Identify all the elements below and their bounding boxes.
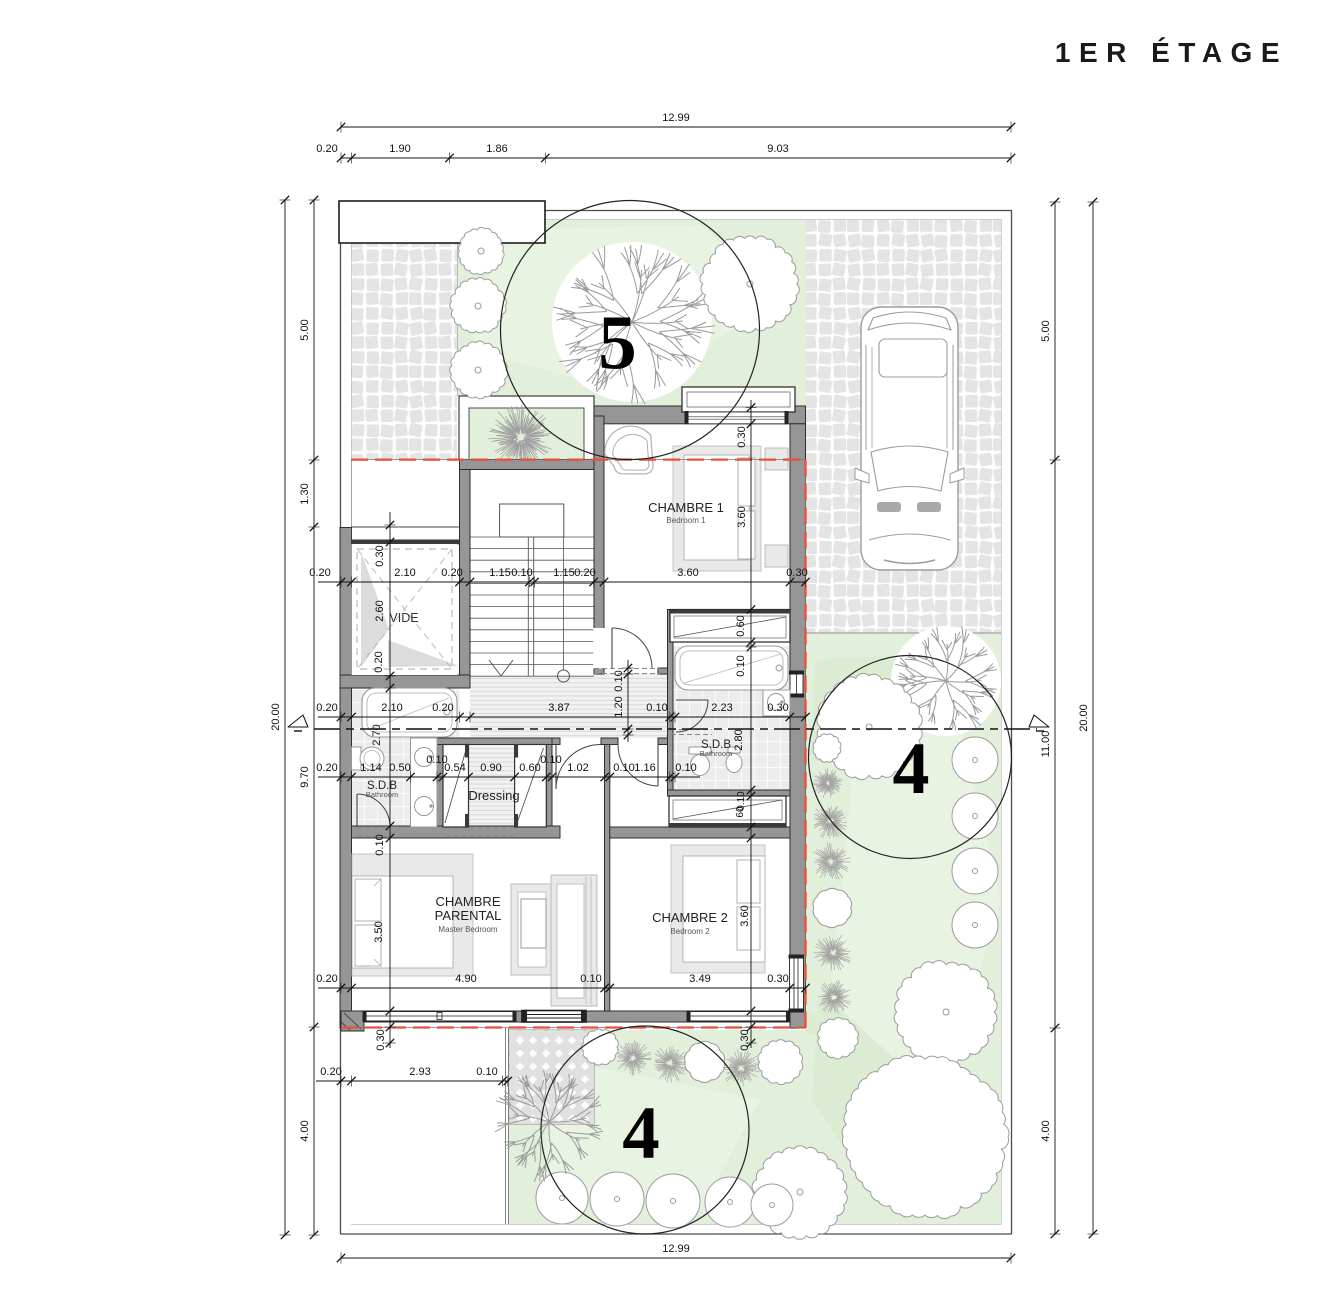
svg-text:0.10: 0.10 — [675, 762, 696, 774]
svg-text:0.20: 0.20 — [316, 762, 337, 774]
svg-text:3.50: 3.50 — [373, 921, 385, 942]
svg-text:1.15: 1.15 — [489, 567, 510, 579]
svg-text:20.00: 20.00 — [1078, 704, 1090, 732]
svg-text:0.20: 0.20 — [316, 973, 337, 985]
svg-text:0.30: 0.30 — [374, 545, 386, 566]
svg-text:2.10: 2.10 — [394, 567, 415, 579]
svg-text:3.60: 3.60 — [736, 506, 748, 527]
svg-text:CHAMBRE 1: CHAMBRE 1 — [648, 500, 724, 515]
svg-text:2.23: 2.23 — [711, 702, 732, 714]
svg-text:1.90: 1.90 — [389, 143, 410, 155]
svg-text:5.00: 5.00 — [299, 319, 311, 340]
svg-text:0.10: 0.10 — [735, 655, 747, 676]
svg-text:0.10: 0.10 — [613, 670, 625, 691]
svg-text:Bathroom: Bathroom — [366, 790, 399, 799]
svg-text:1.16: 1.16 — [634, 762, 655, 774]
svg-text:2.70: 2.70 — [371, 724, 383, 745]
svg-text:0.30: 0.30 — [739, 1029, 751, 1050]
svg-text:0.20: 0.20 — [441, 567, 462, 579]
svg-text:3.60: 3.60 — [739, 905, 751, 926]
svg-text:11.00: 11.00 — [1040, 731, 1052, 758]
svg-text:2.10: 2.10 — [381, 702, 402, 714]
svg-text:4.00: 4.00 — [299, 1120, 311, 1141]
svg-text:Bathroom: Bathroom — [700, 749, 733, 758]
svg-text:0.10: 0.10 — [511, 567, 532, 579]
svg-text:0.10: 0.10 — [646, 702, 667, 714]
svg-text:0.60: 0.60 — [519, 762, 540, 774]
svg-text:0.30: 0.30 — [767, 702, 788, 714]
svg-text:3.49: 3.49 — [689, 973, 710, 985]
svg-text:0.30: 0.30 — [767, 973, 788, 985]
svg-text:Master Bedroom: Master Bedroom — [438, 925, 497, 934]
svg-text:Bedroom 2: Bedroom 2 — [670, 927, 710, 936]
svg-text:1ER ÉTAGE: 1ER ÉTAGE — [1055, 37, 1288, 68]
svg-text:VIDE: VIDE — [389, 611, 418, 625]
svg-text:0.10: 0.10 — [476, 1066, 497, 1078]
svg-text:0.10: 0.10 — [613, 762, 634, 774]
svg-text:1.15: 1.15 — [553, 567, 574, 579]
svg-text:3.87: 3.87 — [548, 702, 569, 714]
svg-text:0.20: 0.20 — [432, 702, 453, 714]
svg-text:12.99: 12.99 — [662, 112, 690, 124]
svg-text:Bedroom 1: Bedroom 1 — [666, 516, 706, 525]
svg-text:2.93: 2.93 — [409, 1066, 430, 1078]
svg-text:0.30: 0.30 — [375, 1029, 387, 1050]
svg-text:0.54: 0.54 — [444, 762, 465, 774]
svg-text:0.20: 0.20 — [309, 567, 330, 579]
svg-text:PARENTAL: PARENTAL — [435, 908, 502, 923]
svg-text:0.10: 0.10 — [580, 973, 601, 985]
svg-text:1.86: 1.86 — [486, 143, 507, 155]
svg-text:2.80: 2.80 — [733, 729, 745, 750]
svg-text:0.20: 0.20 — [316, 702, 337, 714]
svg-text:0.90: 0.90 — [480, 762, 501, 774]
svg-text:9.70: 9.70 — [299, 766, 311, 787]
svg-text:1.14: 1.14 — [360, 762, 381, 774]
svg-text:0.20: 0.20 — [373, 651, 385, 672]
svg-text:9.03: 9.03 — [767, 143, 788, 155]
svg-text:0.50: 0.50 — [389, 762, 410, 774]
svg-text:3.60: 3.60 — [677, 567, 698, 579]
svg-text:0.10: 0.10 — [374, 834, 386, 855]
svg-text:CHAMBRE: CHAMBRE — [435, 894, 500, 909]
svg-text:CHAMBRE 2: CHAMBRE 2 — [652, 910, 728, 925]
svg-text:0.30: 0.30 — [786, 567, 807, 579]
svg-text:4.00: 4.00 — [1040, 1120, 1052, 1141]
svg-text:0.60: 0.60 — [735, 615, 747, 636]
svg-text:5: 5 — [598, 299, 637, 385]
svg-text:4.90: 4.90 — [455, 973, 476, 985]
svg-text:4: 4 — [893, 728, 930, 810]
svg-text:0.20: 0.20 — [320, 1066, 341, 1078]
svg-text:4: 4 — [622, 1092, 660, 1175]
svg-text:5.00: 5.00 — [1040, 320, 1052, 341]
svg-text:20.00: 20.00 — [270, 703, 282, 731]
svg-text:1.20: 1.20 — [613, 696, 625, 717]
svg-text:0.10: 0.10 — [540, 754, 561, 766]
svg-text:0.30: 0.30 — [736, 426, 748, 447]
svg-text:2.60: 2.60 — [374, 600, 386, 621]
svg-text:0.20: 0.20 — [574, 567, 595, 579]
svg-text:Dressing: Dressing — [468, 788, 519, 803]
svg-text:0.20: 0.20 — [316, 143, 337, 155]
svg-text:60: 60 — [735, 806, 746, 818]
svg-text:1.02: 1.02 — [567, 762, 588, 774]
svg-text:12.99: 12.99 — [662, 1243, 690, 1255]
svg-text:1.30: 1.30 — [299, 483, 311, 504]
